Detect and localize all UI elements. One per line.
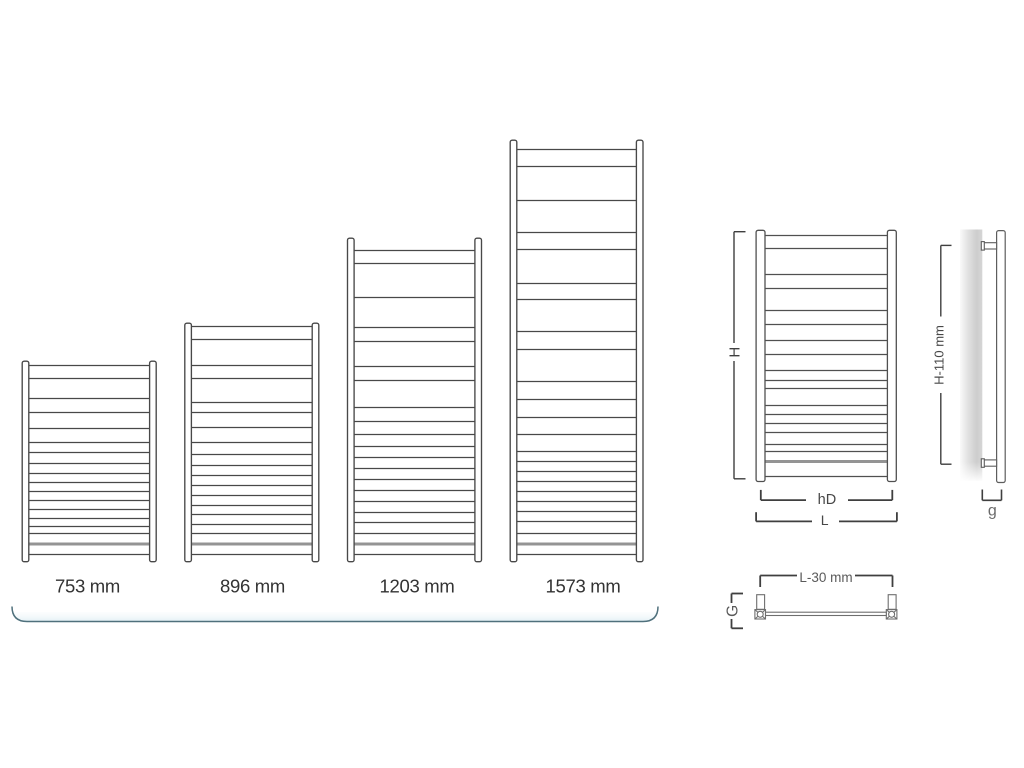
svg-text:L: L (821, 512, 829, 528)
svg-text:753 mm: 753 mm (55, 576, 120, 597)
svg-text:1573 mm: 1573 mm (545, 576, 620, 597)
svg-text:H-110 mm: H-110 mm (932, 325, 947, 385)
svg-text:H: H (726, 347, 743, 358)
svg-text:1203 mm: 1203 mm (379, 576, 454, 597)
svg-text:L-30 mm: L-30 mm (799, 570, 852, 585)
svg-text:g: g (988, 503, 997, 520)
svg-text:896 mm: 896 mm (220, 576, 285, 597)
svg-text:G: G (725, 605, 742, 617)
svg-text:hD: hD (818, 492, 837, 508)
